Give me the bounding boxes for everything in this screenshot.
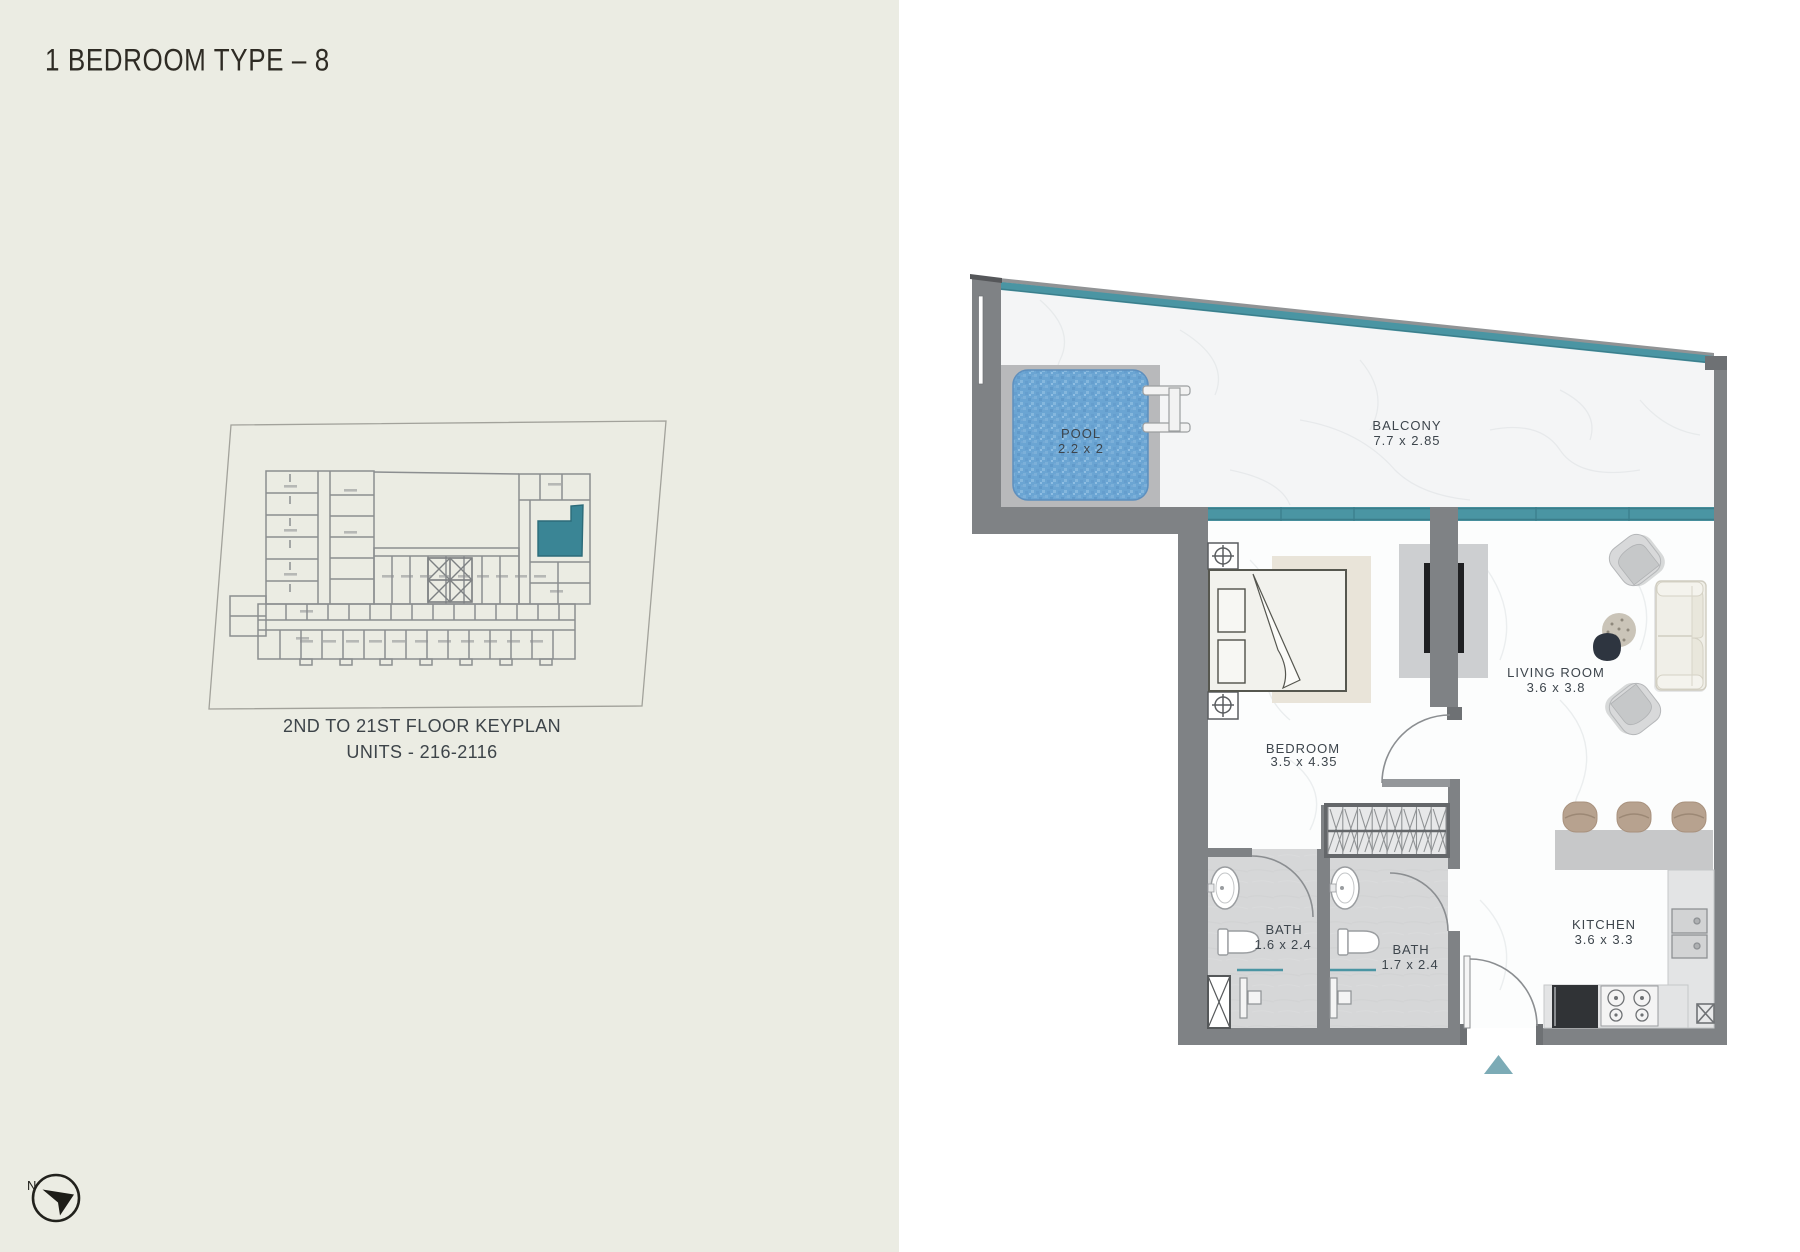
svg-text:LIVING ROOM: LIVING ROOM xyxy=(1507,665,1605,680)
svg-text:3.5 x 4.35: 3.5 x 4.35 xyxy=(1270,754,1337,769)
svg-text:3.6 x 3.8: 3.6 x 3.8 xyxy=(1527,680,1586,695)
svg-text:3.6 x 3.3: 3.6 x 3.3 xyxy=(1575,932,1634,947)
svg-text:1.7 x 2.4: 1.7 x 2.4 xyxy=(1381,957,1438,972)
svg-text:N: N xyxy=(27,1178,36,1193)
svg-text:BATH: BATH xyxy=(1266,922,1303,937)
svg-text:7.7 x 2.85: 7.7 x 2.85 xyxy=(1373,433,1440,448)
svg-text:2.2 x 2: 2.2 x 2 xyxy=(1058,441,1104,456)
svg-text:POOL: POOL xyxy=(1061,426,1101,441)
svg-text:1.6 x 2.4: 1.6 x 2.4 xyxy=(1254,937,1311,952)
svg-text:KITCHEN: KITCHEN xyxy=(1572,917,1636,932)
svg-text:BATH: BATH xyxy=(1393,942,1430,957)
svg-text:BALCONY: BALCONY xyxy=(1372,418,1441,433)
